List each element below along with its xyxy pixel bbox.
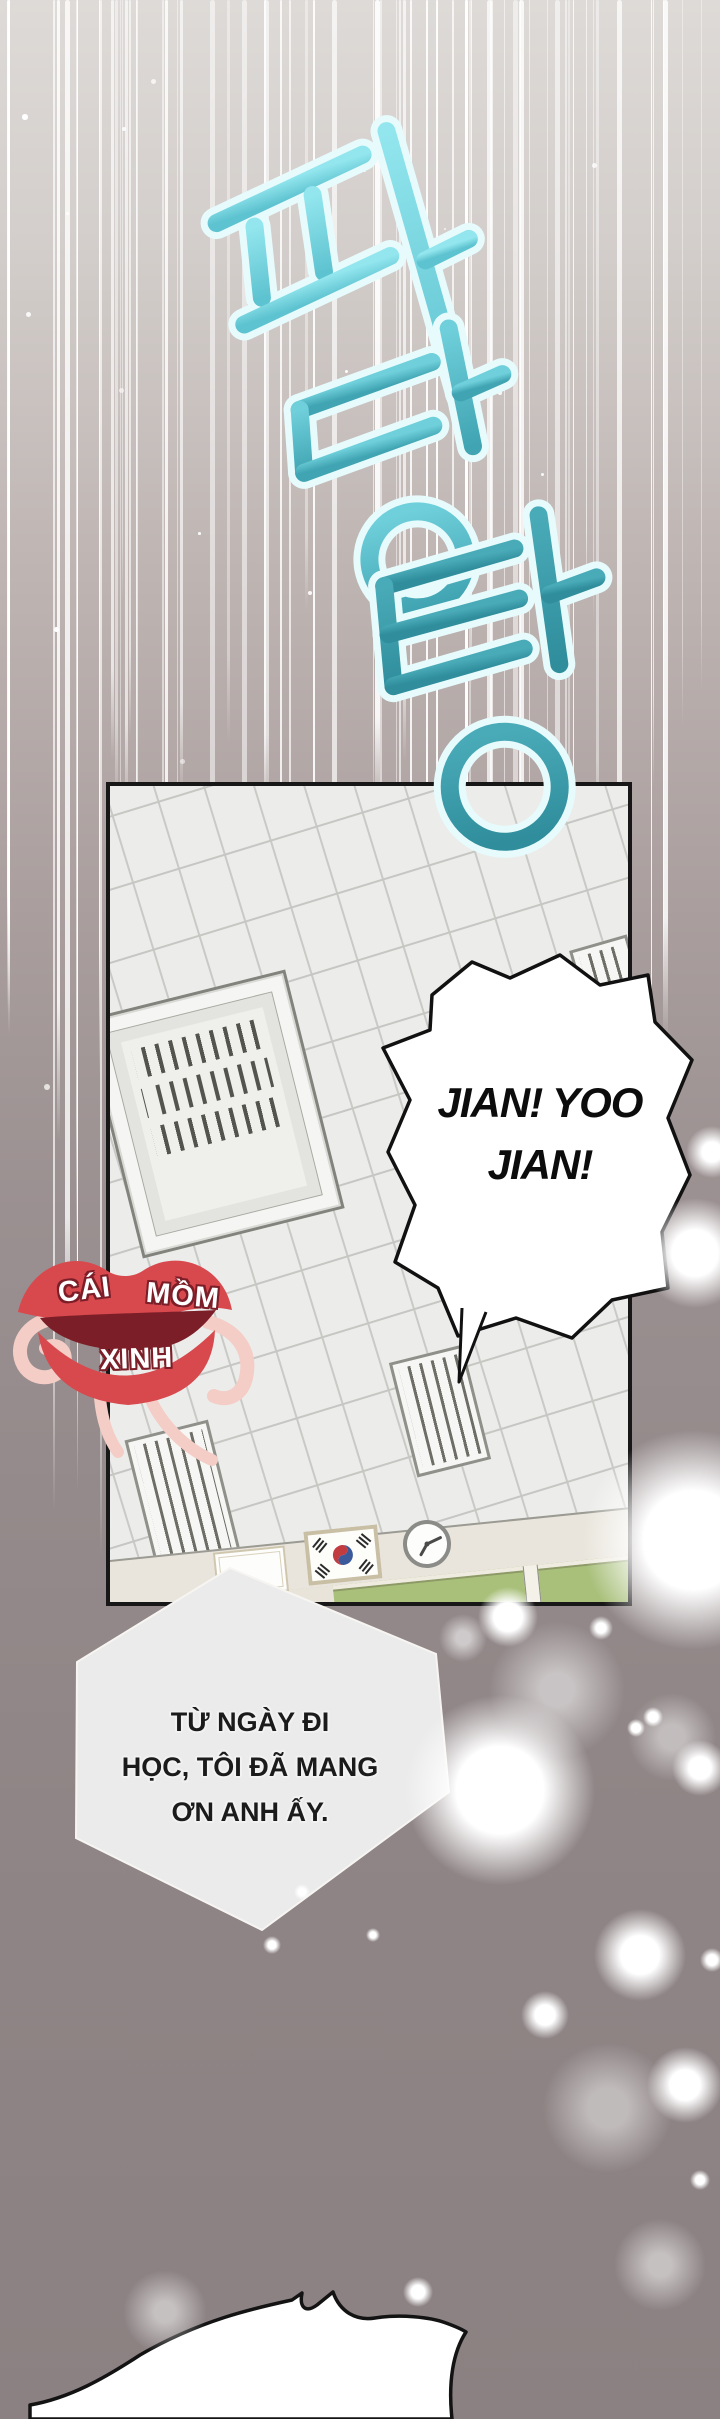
speed-line: [129, 0, 131, 738]
caption-line-3: ƠN ANH ẤY.: [95, 1790, 405, 1835]
speed-line: [77, 0, 78, 1491]
speed-line: [99, 0, 100, 1075]
speed-line: [264, 0, 266, 798]
speed-line: [125, 0, 128, 823]
speed-line: [332, 0, 337, 908]
speed-line: [122, 0, 123, 602]
speed-line: [596, 0, 599, 865]
speck: [39, 1294, 43, 1298]
speck: [22, 114, 28, 120]
sfx-char-dang: [278, 318, 556, 628]
speed-line: [65, 0, 70, 1383]
speed-line: [452, 0, 454, 608]
wall-sign: [213, 1545, 289, 1598]
speed-line: [264, 0, 269, 835]
speed-line: [529, 0, 530, 903]
speed-line: [663, 0, 664, 988]
sfx-sound-text: [201, 117, 643, 858]
speed-line: [663, 0, 668, 1042]
speed-line: [111, 0, 114, 760]
speed-line: [242, 0, 247, 895]
caption-line-2: HỌC, TÔI ĐÃ MANG: [95, 1745, 405, 1790]
speed-line: [471, 0, 472, 689]
speed-line: [100, 0, 102, 1557]
speck: [541, 473, 544, 476]
speck: [44, 1084, 50, 1090]
comic-panel: [106, 782, 632, 1606]
speed-line: [7, 0, 10, 1013]
speed-line: [573, 0, 574, 891]
wall-clock-icon: [399, 1516, 456, 1573]
speck: [444, 228, 446, 230]
speck: [308, 591, 312, 595]
caption-box: [76, 1568, 449, 1930]
speck: [151, 79, 156, 84]
speed-line: [8, 0, 10, 1035]
speed-line: [57, 0, 60, 1141]
speed-line: [653, 0, 654, 786]
speed-line: [115, 0, 118, 818]
lips-left-arm: [20, 1318, 65, 1377]
speed-line: [227, 0, 230, 743]
caption-line-1: TỪ NGÀY ĐI: [95, 1700, 405, 1745]
sfx-char-pa: [201, 117, 514, 453]
speed-line: [53, 0, 55, 1511]
speed-line: [547, 0, 548, 885]
narration-caption: TỪ NGÀY ĐI HỌC, TÔI ĐÃ MANG ƠN ANH ẤY.: [95, 1700, 405, 1835]
bottom-bubble: [30, 2292, 466, 2419]
speed-line: [136, 0, 138, 905]
speed-line: [305, 0, 308, 611]
speed-line: [210, 0, 215, 894]
speed-line: [682, 0, 683, 727]
speed-line: [375, 0, 380, 816]
speed-line: [555, 0, 560, 836]
speck: [198, 532, 201, 535]
speck: [498, 391, 502, 395]
logo-word-cai: CÁI: [56, 1271, 113, 1310]
korean-flag-icon: [303, 1524, 382, 1587]
speck: [592, 163, 597, 168]
speed-line: [180, 0, 183, 799]
air-vent-frame: [106, 993, 321, 1236]
speck: [26, 312, 31, 317]
speck: [345, 370, 348, 373]
comic-page: JIAN! YOO JIAN! TỪ NGÀY ĐI HỌC, TÔI ĐÃ M…: [0, 0, 720, 2419]
speed-line: [701, 0, 702, 691]
speck: [122, 127, 126, 131]
grille-slats: [579, 944, 632, 1025]
grille-slats: [399, 1354, 482, 1467]
speck: [54, 627, 59, 632]
speck: [66, 212, 69, 215]
speed-line: [373, 0, 374, 823]
speed-line: [593, 0, 594, 622]
speed-line: [403, 0, 406, 761]
speed-line: [651, 0, 652, 1135]
chalkboard-divider: [523, 1565, 551, 1606]
speed-line: [586, 0, 587, 603]
speck: [363, 169, 366, 172]
speed-line: [519, 0, 524, 902]
speck: [119, 388, 124, 393]
speck: [180, 759, 185, 764]
speed-line: [76, 0, 78, 1270]
